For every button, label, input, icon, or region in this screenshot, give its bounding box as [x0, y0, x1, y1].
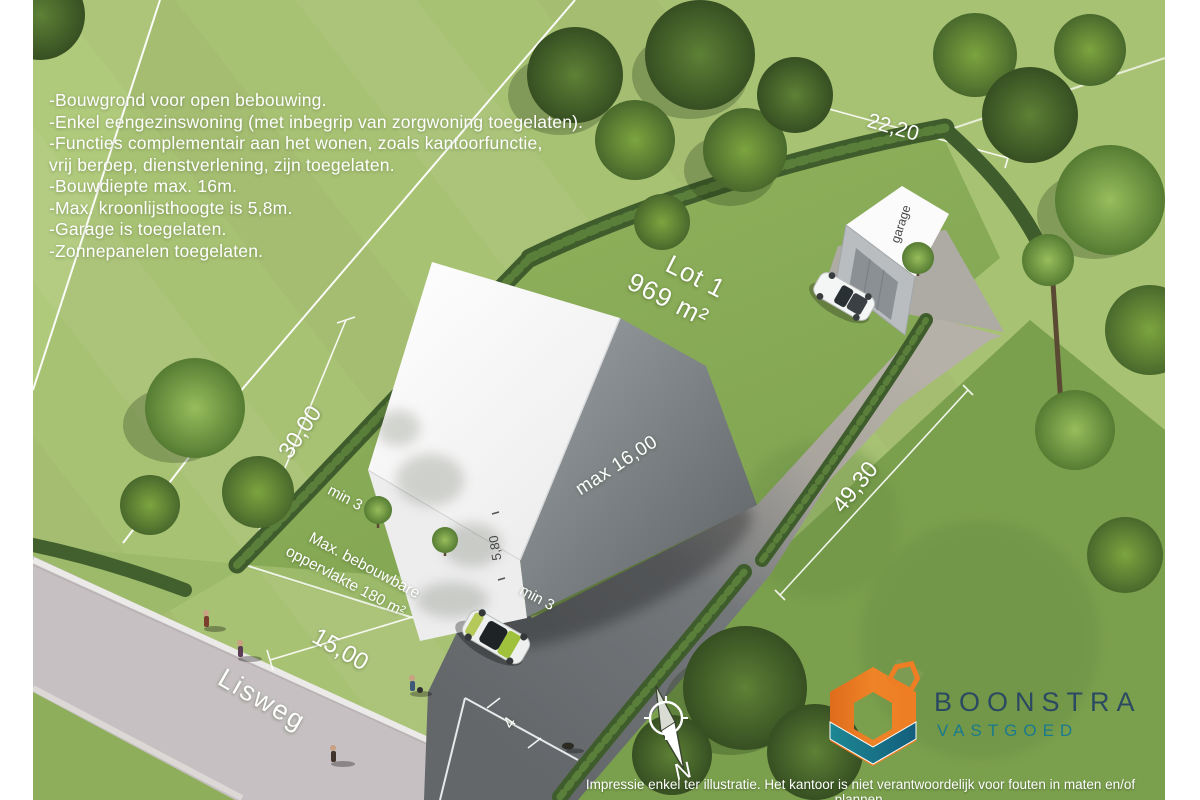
- logo-company-name: BOONSTRA: [934, 687, 1142, 718]
- disclaimer-text: Impressie enkel ter illustratie. Het kan…: [578, 777, 1143, 800]
- page-margin-right: [1165, 0, 1200, 800]
- page-margin-left: [0, 0, 33, 800]
- regulation-line: -Enkel eengezinswoning (met inbegrip van…: [49, 112, 583, 134]
- regulation-line: -Zonnepanelen toegelaten.: [49, 241, 583, 263]
- regulation-line: -Bouwgrond voor open bebouwing.: [49, 90, 583, 112]
- regulation-line: -Functies complementair aan het wonen, z…: [49, 133, 583, 155]
- logo-company-subtitle: VASTGOED: [937, 721, 1078, 741]
- regulation-line: -Bouwdiepte max. 16m.: [49, 176, 583, 198]
- regulations-text: -Bouwgrond voor open bebouwing. -Enkel e…: [49, 90, 583, 262]
- site-plan-render: -Bouwgrond voor open bebouwing. -Enkel e…: [0, 0, 1200, 800]
- regulation-line: -Max. kroonlijsthoogte is 5,8m.: [49, 198, 583, 220]
- regulation-line: -Garage is toegelaten.: [49, 219, 583, 241]
- regulation-line: vrij beroep, dienstverlening, zijn toege…: [49, 155, 583, 177]
